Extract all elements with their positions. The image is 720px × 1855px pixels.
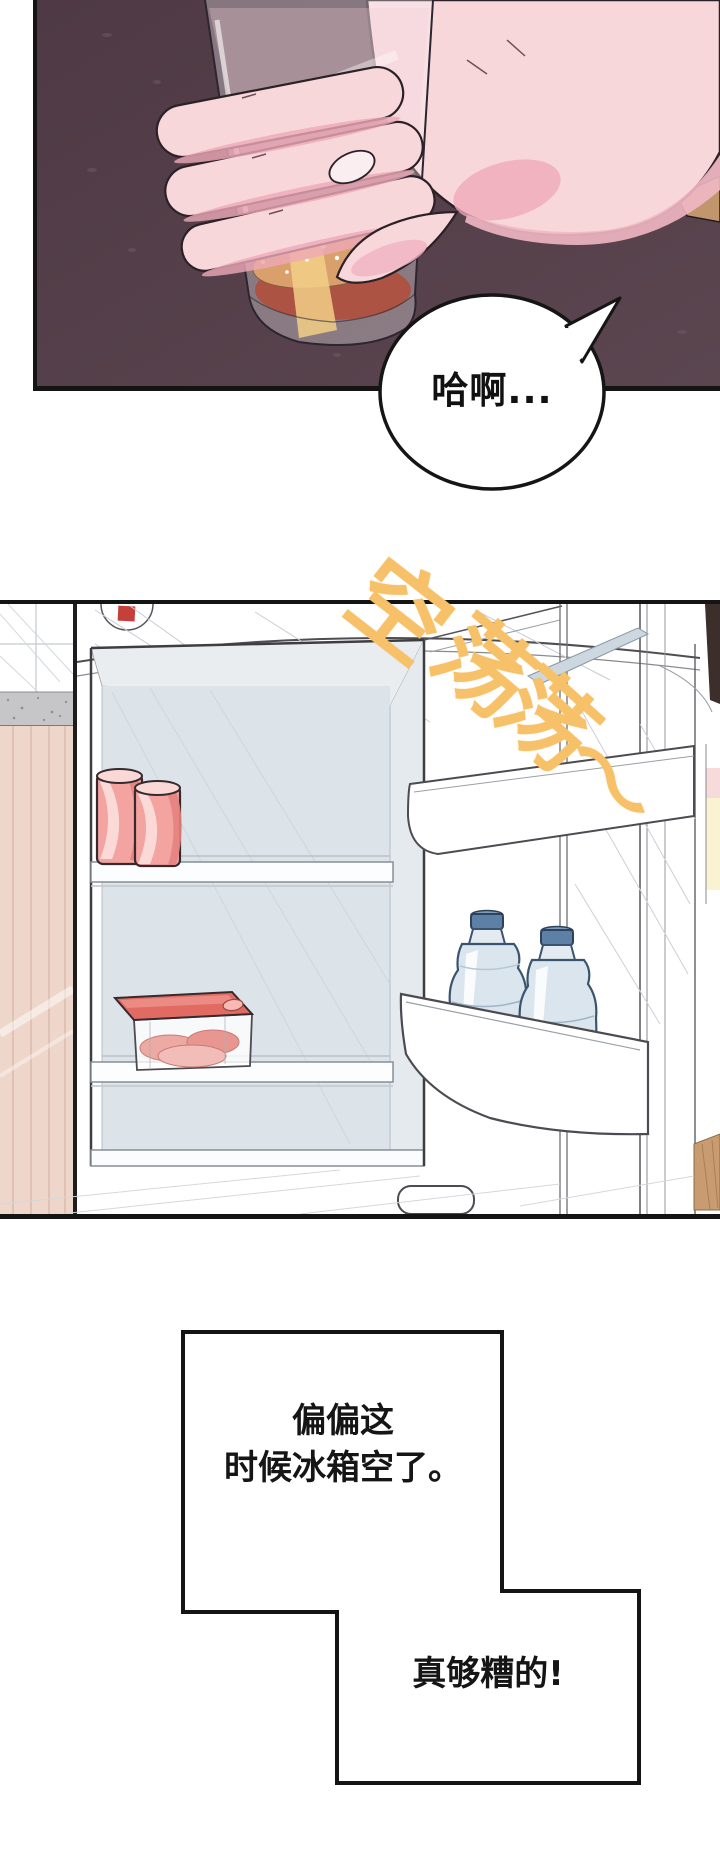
yellow-strip-right xyxy=(706,798,720,890)
door-bottom-tray xyxy=(398,1186,474,1214)
soda-can-2 xyxy=(135,781,182,866)
wood-floor xyxy=(694,1134,720,1210)
cavity-right-wall xyxy=(390,640,424,1164)
wall-fridge-divider xyxy=(73,604,77,1214)
pink-strip-right xyxy=(706,768,720,798)
comic-page: 哈啊... xyxy=(0,0,720,1855)
caption-1-line-2: 时候冰箱空了。 xyxy=(183,1445,503,1492)
speech-bubble-tail-mask xyxy=(547,328,587,364)
cavity-floor xyxy=(91,1150,424,1166)
door-liner-curve xyxy=(660,666,712,712)
caption-1: 偏偏这 时候冰箱空了。 xyxy=(183,1398,503,1492)
panel-fridge xyxy=(0,600,720,1219)
dark-wedge-top-right xyxy=(705,604,720,704)
speech-bubble-text: 哈啊... xyxy=(402,370,582,412)
caption-box-shape xyxy=(150,1300,670,1820)
granite-strip xyxy=(0,692,73,726)
wood-cabinet xyxy=(0,726,73,1214)
caption-1-line-1: 偏偏这 xyxy=(183,1398,503,1445)
caption-2: 真够糟的! xyxy=(337,1651,639,1698)
speed-lines-bottom xyxy=(0,1170,694,1214)
food-container xyxy=(115,992,252,1070)
fridge-scene xyxy=(0,604,720,1214)
